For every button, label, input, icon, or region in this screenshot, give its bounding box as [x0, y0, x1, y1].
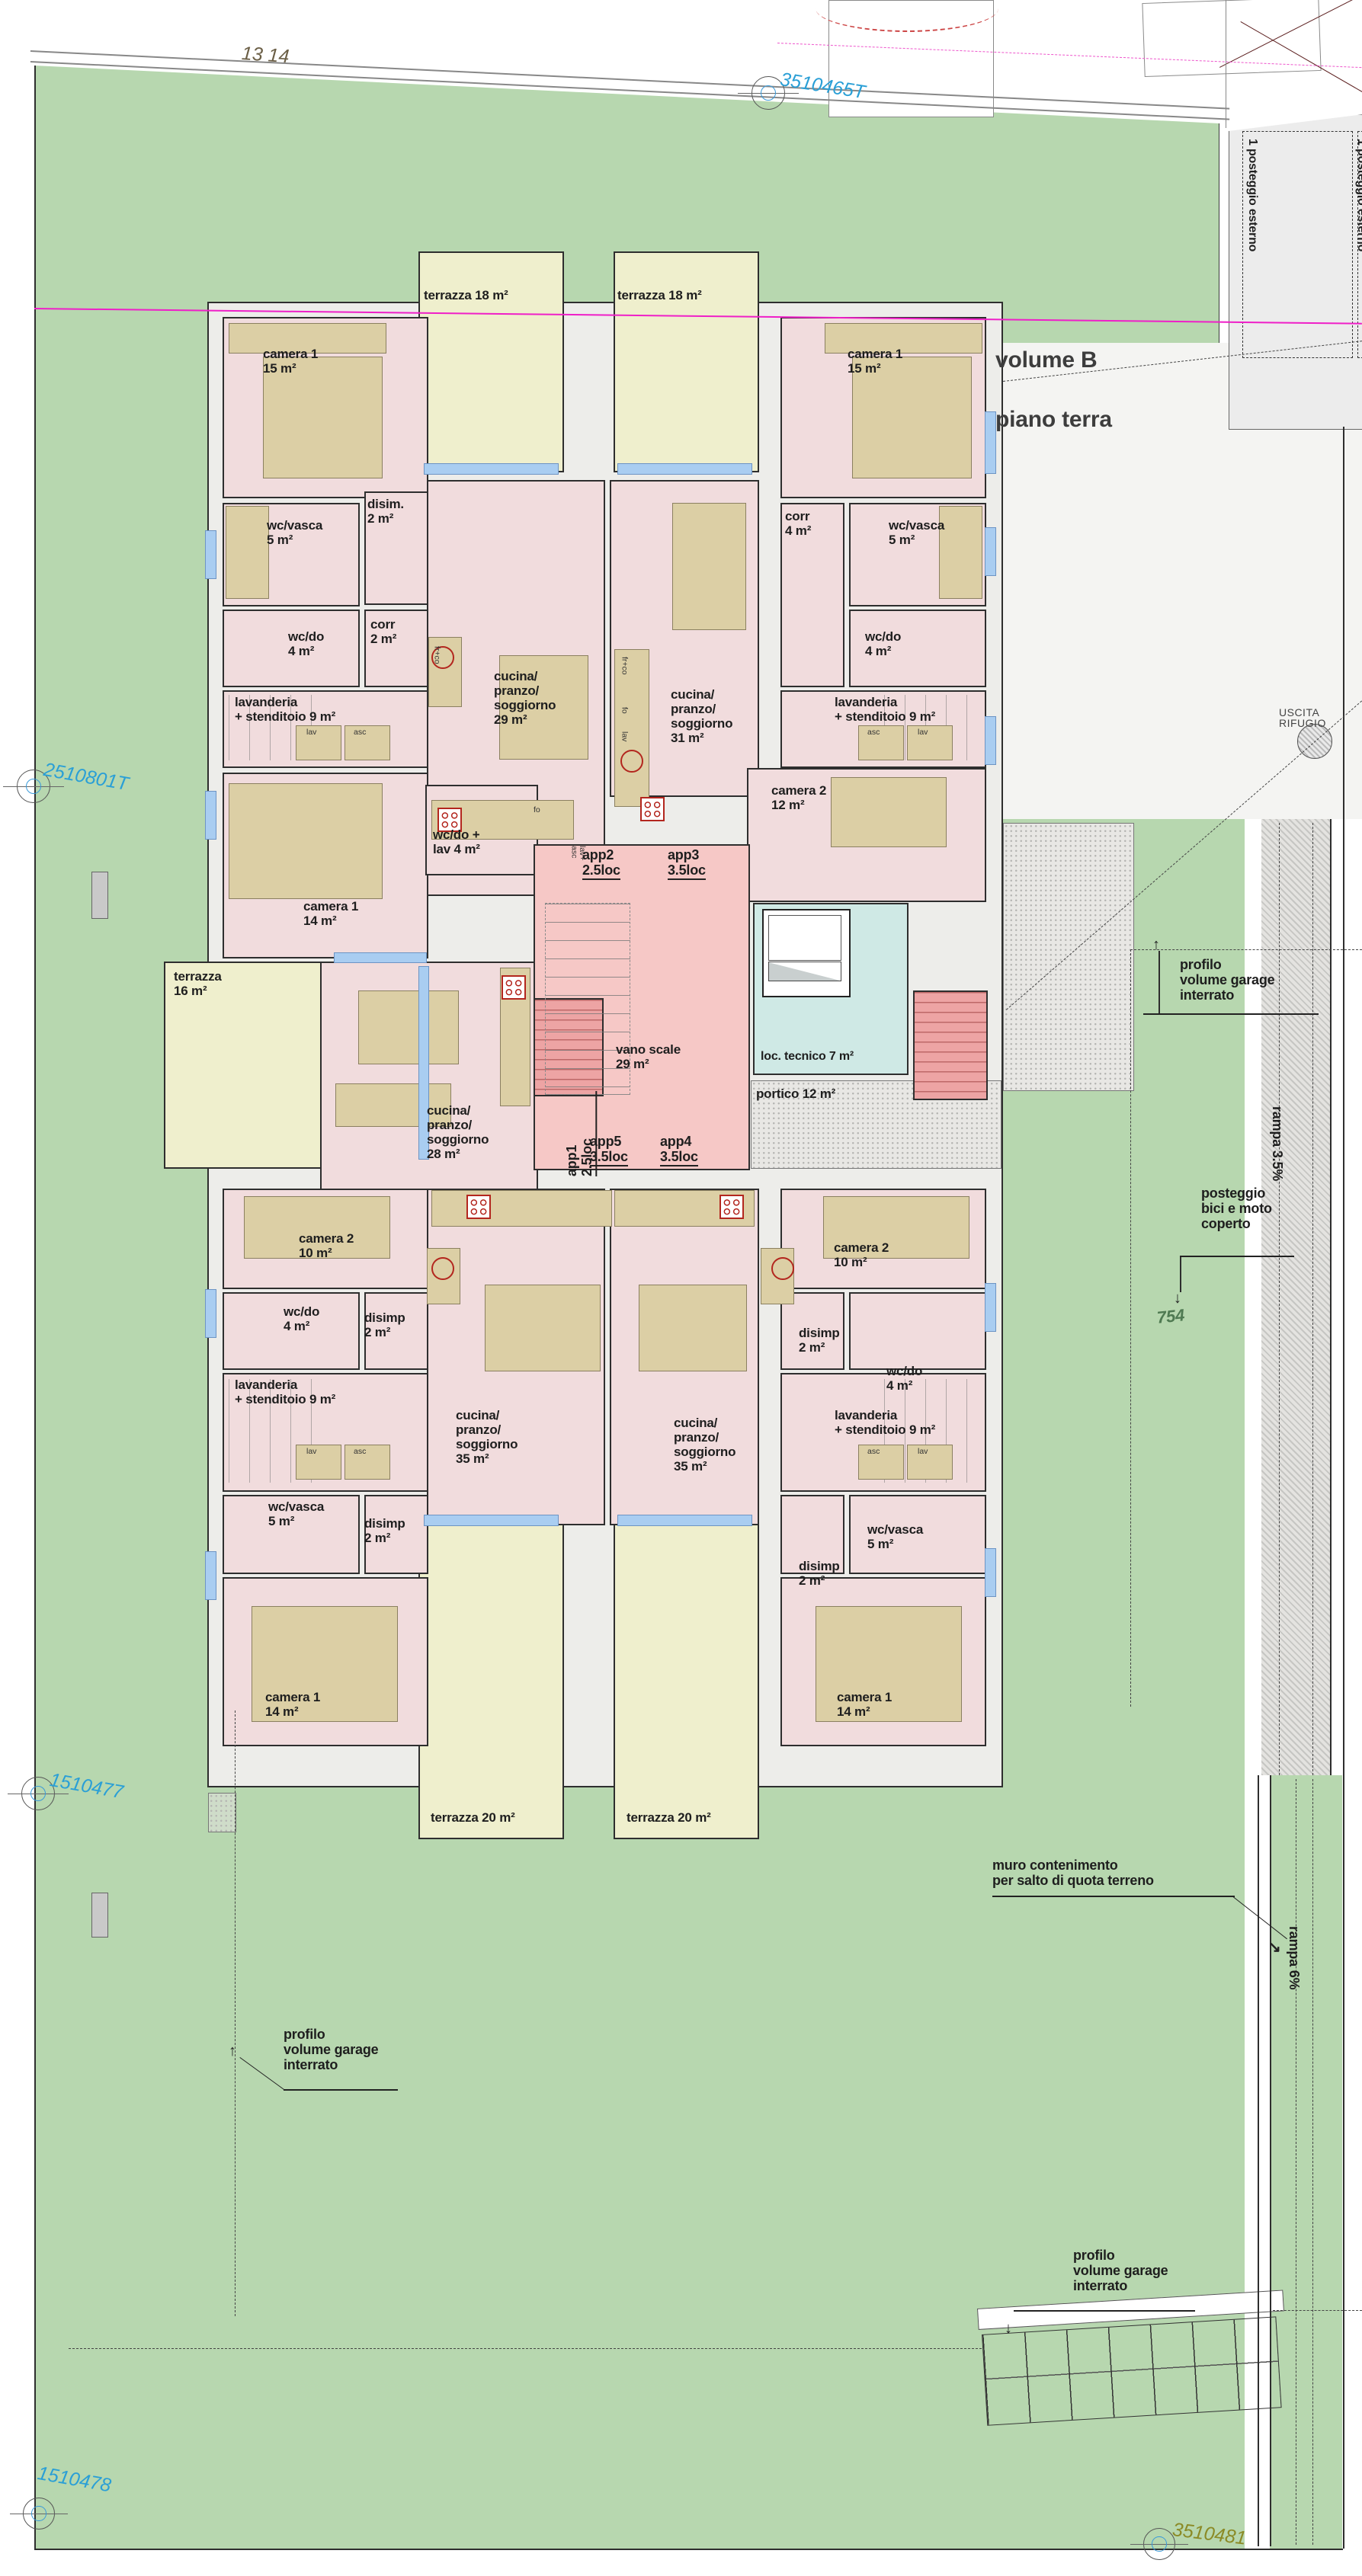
garage-profile-dash-left — [235, 1710, 236, 2316]
label-terrace18-left: terrazza 18 m² — [424, 288, 508, 302]
label-app4: app4 3.5loc — [660, 1134, 698, 1166]
ramp-35-edge-1 — [1279, 823, 1280, 1775]
label-posteggio-bici: posteggio bici e moto coperto — [1201, 1186, 1272, 1231]
label-cucina29: cucina/ pranzo/ soggiorno 29 m² — [494, 669, 556, 727]
leader-bici-v — [1180, 1256, 1181, 1292]
label-cucina35-r: cucina/ pranzo/ soggiorno 35 m² — [674, 1416, 735, 1474]
window — [985, 411, 996, 474]
label-disimp-lr2: disimp 2 m² — [799, 1559, 840, 1588]
label-wcvasca-ur: wc/vasca 5 m² — [889, 518, 944, 547]
leader-profilo-br — [1014, 2310, 1195, 2312]
label-wcvasca-ll: wc/vasca 5 m² — [268, 1499, 324, 1528]
parcel-grass-right — [1218, 819, 1245, 2549]
garage-profile-dash-right — [1130, 949, 1131, 1707]
window — [617, 1515, 752, 1526]
label-profilo-garage-br: profilo volume garage interrato — [1073, 2248, 1168, 2293]
dryer — [907, 1445, 953, 1480]
label-camera1-ur: camera 1 15 m² — [848, 347, 902, 376]
elevator-ramp-wedge — [768, 962, 841, 981]
dining-table — [358, 990, 459, 1064]
label-disimp-ll1: disimp 2 m² — [364, 1310, 405, 1339]
drawing-title: volume B piano terra — [995, 315, 1112, 464]
window — [985, 716, 996, 765]
bed — [229, 783, 383, 899]
label-cucina31: cucina/ pranzo/ soggiorno 31 m² — [671, 687, 732, 745]
dining-table — [672, 503, 746, 630]
label-camera1-ml: camera 1 14 m² — [303, 899, 358, 928]
bathtub — [226, 506, 269, 599]
cooktop-icon — [719, 1195, 744, 1219]
label-disimp-ll2: disimp 2 m² — [364, 1516, 405, 1545]
ramp-6-edge-1 — [1296, 1779, 1296, 2545]
label-cucina28: cucina/ pranzo/ soggiorno 28 m² — [427, 1103, 489, 1161]
washer — [858, 725, 904, 760]
boundary-left — [34, 66, 36, 2549]
label-wcdo-lr: wc/do 4 m² — [886, 1364, 922, 1393]
arrow-up-icon: ↑ — [229, 2043, 236, 2059]
label-app3: app3 3.5loc — [668, 847, 706, 880]
washer — [296, 1445, 341, 1480]
label-rampa-6: rampa 6% — [1287, 1926, 1302, 2040]
kitchen-counter — [614, 649, 649, 807]
mini-asc: asc — [354, 1448, 366, 1456]
sink-icon — [771, 1257, 794, 1280]
parcel-number: 754 — [1156, 1306, 1185, 1327]
label-lavanderia-lr: lavanderia + stenditoio 9 m² — [835, 1408, 935, 1437]
washer — [858, 1445, 904, 1480]
mini-fo: fo — [534, 806, 540, 814]
label-disimp-lr1: disimp 2 m² — [799, 1326, 840, 1355]
label-muro-contenimento: muro contenimento per salto di quota ter… — [992, 1858, 1154, 1888]
label-wcdo-ll: wc/do 4 m² — [284, 1304, 319, 1333]
neighbor-lot-line — [1226, 0, 1226, 128]
label-camera1-bl: camera 1 14 m² — [265, 1690, 320, 1719]
arrow-up-icon: ↑ — [1152, 937, 1160, 952]
window — [205, 1551, 216, 1600]
label-camera1-br: camera 1 14 m² — [837, 1690, 892, 1719]
window — [985, 1548, 996, 1597]
mini-asc: asc — [354, 728, 366, 737]
ramp-35-edge-2 — [1312, 823, 1313, 1775]
window — [334, 952, 427, 963]
label-camera1-ul: camera 1 15 m² — [263, 347, 318, 376]
dryer — [345, 725, 390, 760]
label-camera2-ur: camera 2 12 m² — [771, 783, 826, 812]
window — [424, 463, 559, 475]
terrace-18-left — [418, 251, 564, 472]
label-disim-ul: disim. 2 m² — [367, 497, 404, 526]
kitchen-counter — [431, 1190, 612, 1227]
label-lavanderia-ul: lavanderia + stenditoio 9 m² — [235, 695, 335, 724]
leader-profilo-right — [1143, 1013, 1319, 1015]
survey-marker-bottomleft — [23, 2498, 55, 2530]
garage-vent-hatch — [208, 1793, 236, 1832]
washer — [296, 725, 341, 760]
arrow-downright-icon: ↘ — [1268, 1940, 1281, 1955]
terrace-20-left — [418, 1524, 564, 1839]
mini-lavasc: lav+ asc — [570, 846, 586, 861]
window — [205, 530, 216, 579]
cooktop-icon — [466, 1195, 491, 1219]
terrace-18-right — [614, 251, 759, 472]
mini-lav: lav — [306, 1448, 316, 1456]
dining-table — [485, 1285, 601, 1371]
label-corr-ul: corr 2 m² — [370, 617, 396, 646]
window — [424, 1515, 559, 1526]
label-profilo-garage-right: profilo volume garage interrato — [1180, 957, 1274, 1003]
entry-pad — [91, 1893, 108, 1938]
parking-stall-1-label: 1 posteggio esterno — [1245, 139, 1259, 352]
mini-fo: fo — [620, 707, 629, 714]
cooktop-icon — [640, 797, 665, 821]
sink-icon — [431, 1257, 454, 1280]
parking-stall-2-label: 1 posteggio esterno — [1354, 139, 1362, 352]
arrow-down-icon: ↓ — [1174, 1291, 1181, 1306]
label-wcvasca-ul: wc/vasca 5 m² — [267, 518, 322, 547]
label-lavanderia-ur: lavanderia + stenditoio 9 m² — [835, 695, 935, 724]
dryer — [345, 1445, 390, 1480]
mini-asc: asc — [867, 728, 880, 737]
label-loc-tecnico: loc. tecnico 7 m² — [761, 1050, 854, 1064]
label-cucina35-l: cucina/ pranzo/ soggiorno 35 m² — [456, 1408, 518, 1466]
dryer — [907, 725, 953, 760]
ramp-wall-right — [1330, 819, 1332, 1775]
mini-frco: fr+co — [433, 646, 441, 664]
label-lavanderia-ll: lavanderia + stenditoio 9 m² — [235, 1378, 335, 1406]
cooktop-icon — [502, 975, 526, 1000]
label-vano-scale: vano scale 29 m² — [616, 1042, 681, 1071]
garage-profile-dash-bottom — [69, 2348, 982, 2349]
sink-icon — [620, 750, 643, 773]
label-camera2-lr: camera 2 10 m² — [834, 1240, 889, 1269]
label-profilo-garage-bl: profilo volume garage interrato — [284, 2027, 378, 2072]
garage-profile-dash-corner — [1273, 2310, 1362, 2311]
label-wcdolav: wc/do + lav 4 m² — [433, 827, 480, 856]
window — [985, 527, 996, 576]
bed — [831, 777, 947, 847]
paved-court — [1003, 823, 1134, 1091]
room-wcdo-lr — [849, 1292, 986, 1370]
title-line2: piano terra — [995, 405, 1112, 434]
mini-lav: lav — [918, 1448, 928, 1456]
leader-profilo-bl — [284, 2089, 398, 2091]
window — [205, 1289, 216, 1338]
title-line1: volume B — [995, 345, 1112, 375]
label-rampa-35: rampa 3.5% — [1270, 1106, 1285, 1266]
label-camera2-ll: camera 2 10 m² — [299, 1231, 354, 1260]
window — [617, 463, 752, 475]
leader-muro — [992, 1896, 1235, 1897]
arrow-down-icon: ↓ — [1005, 2321, 1012, 2336]
survey-plot-numbers: 13 14 — [241, 43, 290, 68]
floor-plan-canvas: 1 posteggio esterno 1 posteggio esterno … — [0, 0, 1362, 2576]
ramp-wall-left — [1258, 1775, 1259, 2546]
mini-lav: lav — [918, 728, 928, 737]
label-terrace20-left: terrazza 20 m² — [431, 1810, 515, 1825]
elevator-car — [768, 915, 841, 961]
label-wcdo-ur: wc/do 4 m² — [865, 629, 901, 658]
label-corr4-ur: corr 4 m² — [785, 509, 811, 538]
mini-frco: fr+co — [620, 657, 629, 675]
mini-lav: lav — [306, 728, 316, 737]
terrace-20-right — [614, 1524, 759, 1839]
neighbor-building-outline-2 — [1142, 0, 1321, 77]
label-terrace18-right: terrazza 18 m² — [617, 288, 702, 302]
bathtub — [939, 506, 982, 599]
ramp-corridor-grass — [1270, 1775, 1342, 2549]
entry-pad — [91, 872, 108, 919]
survey-marker-bottomright — [1143, 2528, 1175, 2560]
label-terrace20-right: terrazza 20 m² — [627, 1810, 711, 1825]
leader-bici — [1180, 1256, 1294, 1257]
garage-profile-dash-top — [1130, 949, 1362, 950]
label-wcdo-ul: wc/do 4 m² — [288, 629, 324, 658]
window — [205, 791, 216, 840]
mini-asc: asc — [867, 1448, 880, 1456]
label-wcvasca-lr: wc/vasca 5 m² — [867, 1522, 923, 1551]
ramp-6-edge-2 — [1312, 1779, 1313, 2545]
uscita-rifugio-label: USCITA RIFUGIO — [1279, 707, 1362, 728]
garage-stair-grid — [982, 2316, 1282, 2425]
dining-table — [639, 1285, 747, 1371]
label-app5: app5 3.5loc — [590, 1134, 628, 1166]
boundary-right — [1343, 427, 1344, 2549]
label-terrace16: terrazza 16 m² — [174, 969, 222, 998]
label-portico: portico 12 m² — [756, 1086, 835, 1101]
label-app2: app2 2.5loc — [582, 847, 620, 880]
window — [985, 1283, 996, 1332]
exterior-stair-right — [913, 990, 988, 1100]
leader-profilo-right-v — [1159, 951, 1160, 1013]
ramp-wall-left2 — [1270, 1775, 1271, 2546]
mini-lav: lav — [620, 731, 629, 741]
